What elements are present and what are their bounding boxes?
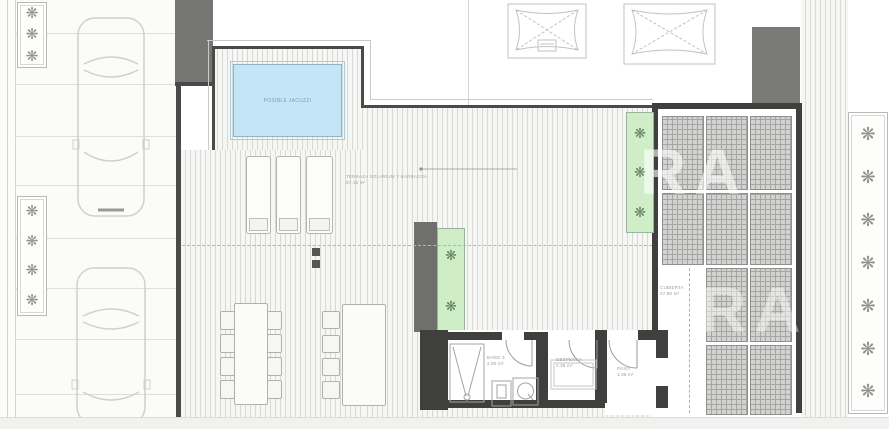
toilet <box>492 381 511 406</box>
bano3-area: 2.85 m² <box>487 361 505 367</box>
bano3-name: BAÑO 3 <box>487 355 505 361</box>
terrace-label: TERRAZA SOLARIUM Y BARBACOA 87.15 m² <box>346 174 427 186</box>
floor-plan: ❋ ❋ ❋ ❋ ❋ ❋ ❋ POSIBLE JACUZZI <box>0 0 889 429</box>
despensa-name: DESPENSA <box>556 357 582 363</box>
despensa-area: 2.35 m² <box>556 363 582 369</box>
linework-overlay <box>0 0 889 429</box>
terrace-name: TERRAZA SOLARIUM Y BARBACOA <box>346 174 427 180</box>
paso-label: PASO 3.36 m² <box>617 366 634 377</box>
paso-area: 3.36 m² <box>617 372 634 378</box>
cubierta-name: CUBIERTA <box>660 285 684 291</box>
shower <box>450 344 484 402</box>
watermark: RA <box>700 278 808 342</box>
cubierta-area: 27.80 m² <box>660 291 684 297</box>
watermark: RA <box>640 140 748 204</box>
dimension-leader <box>419 167 517 170</box>
bano3-label: BAÑO 3 2.85 m² <box>487 355 505 366</box>
skylight-2 <box>624 4 715 64</box>
door-arc-paso <box>609 340 637 368</box>
cubierta-label: CUBIERTA 27.80 m² <box>660 285 684 296</box>
door-arc-bano3 <box>506 340 532 366</box>
car-top-view-2 <box>72 268 150 424</box>
image-bottom-strip <box>0 417 889 429</box>
car-top-view-1 <box>73 18 149 216</box>
washbasin <box>513 378 538 405</box>
despensa-label: DESPENSA 2.35 m² <box>556 357 582 368</box>
terrace-area: 87.15 m² <box>346 180 427 186</box>
skylight-1 <box>508 4 586 58</box>
